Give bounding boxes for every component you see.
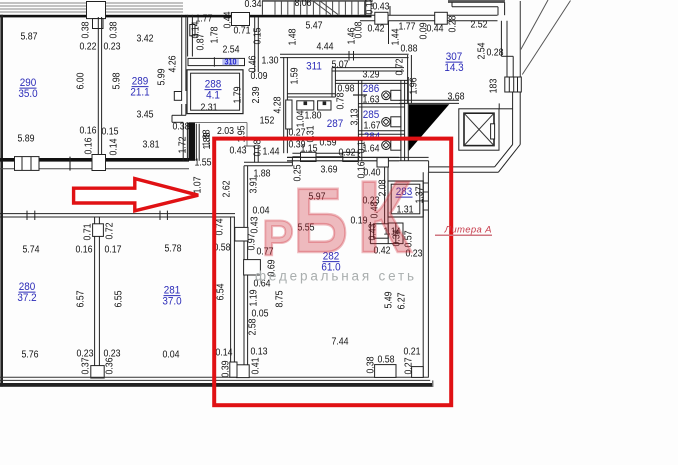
svg-text:Б: Б [293, 168, 348, 271]
svg-text:6.27: 6.27 [395, 292, 407, 309]
svg-text:0.28: 0.28 [446, 15, 458, 32]
svg-text:0.22: 0.22 [79, 40, 96, 52]
svg-text:2.58: 2.58 [246, 318, 258, 335]
svg-text:289: 289 [132, 76, 149, 88]
svg-text:1.80: 1.80 [304, 109, 321, 121]
svg-text:3.91: 3.91 [247, 176, 259, 193]
svg-text:0.09: 0.09 [417, 22, 429, 39]
svg-text:0.43: 0.43 [248, 216, 260, 233]
svg-text:1.07: 1.07 [191, 176, 203, 193]
svg-text:К: К [357, 161, 412, 275]
svg-text:6.55: 6.55 [112, 290, 124, 307]
svg-text:0.23: 0.23 [103, 40, 120, 52]
svg-text:1.79: 1.79 [231, 86, 243, 103]
svg-text:федеральная сеть: федеральная сеть [255, 269, 414, 284]
svg-text:0.41: 0.41 [249, 357, 261, 374]
svg-text:3.42: 3.42 [136, 32, 153, 44]
svg-text:1.44: 1.44 [262, 145, 279, 157]
svg-text:8.06: 8.06 [294, 0, 311, 8]
svg-text:290: 290 [20, 77, 37, 89]
svg-text:0.58: 0.58 [377, 353, 394, 365]
svg-text:0.38: 0.38 [79, 21, 91, 38]
svg-text:287: 287 [327, 118, 344, 130]
svg-text:2.62: 2.62 [220, 180, 232, 197]
svg-text:0.08: 0.08 [251, 139, 263, 156]
svg-text:5.07: 5.07 [331, 58, 348, 70]
svg-text:3.13: 3.13 [348, 108, 360, 125]
svg-text:0.39: 0.39 [219, 360, 231, 377]
svg-text:0.15: 0.15 [101, 125, 118, 137]
svg-text:0.72: 0.72 [103, 222, 115, 239]
svg-text:1.96: 1.96 [407, 77, 419, 94]
svg-text:Литера А: Литера А [444, 225, 492, 236]
svg-text:307: 307 [446, 51, 463, 63]
svg-text:0.97: 0.97 [245, 233, 257, 250]
svg-text:1.77: 1.77 [398, 20, 415, 32]
svg-text:0.28: 0.28 [486, 46, 503, 58]
svg-text:0.14: 0.14 [107, 138, 119, 155]
svg-text:21.1: 21.1 [130, 87, 149, 99]
svg-text:7.44: 7.44 [331, 335, 348, 347]
svg-text:1.67: 1.67 [363, 119, 380, 131]
svg-text:1.30: 1.30 [261, 54, 278, 66]
svg-text:311: 311 [306, 61, 322, 73]
svg-text:0.71: 0.71 [81, 223, 93, 240]
svg-text:0.23: 0.23 [103, 347, 120, 359]
svg-text:310: 310 [224, 57, 236, 67]
svg-text:0.04: 0.04 [162, 348, 179, 360]
svg-text:0.08: 0.08 [352, 21, 364, 38]
svg-text:3.29: 3.29 [362, 68, 379, 80]
svg-text:1.44: 1.44 [389, 28, 401, 45]
svg-text:0.27: 0.27 [402, 357, 414, 374]
svg-text:5.89: 5.89 [17, 132, 34, 144]
svg-text:0.46: 0.46 [246, 55, 258, 72]
svg-text:6.57: 6.57 [74, 290, 86, 307]
svg-text:0.38: 0.38 [364, 356, 376, 373]
svg-text:37.2: 37.2 [17, 292, 36, 304]
svg-text:0.16: 0.16 [82, 137, 94, 154]
svg-text:0.44: 0.44 [426, 22, 443, 34]
svg-text:0.88: 0.88 [400, 42, 417, 54]
svg-text:0.12: 0.12 [363, 0, 375, 15]
svg-text:4.44: 4.44 [316, 40, 333, 52]
svg-text:1.59: 1.59 [288, 67, 300, 84]
svg-text:1.72: 1.72 [176, 136, 188, 153]
svg-text:Р: Р [262, 211, 294, 266]
svg-text:0.92: 0.92 [338, 146, 355, 158]
svg-text:0.15: 0.15 [251, 27, 263, 44]
svg-text:0.42: 0.42 [367, 22, 384, 34]
svg-text:0.38: 0.38 [107, 21, 119, 38]
svg-text:1.48: 1.48 [286, 28, 298, 45]
svg-text:1.55: 1.55 [194, 156, 211, 168]
svg-text:2.39: 2.39 [249, 86, 261, 103]
svg-text:0.34: 0.34 [244, 0, 261, 9]
svg-text:5.76: 5.76 [21, 348, 38, 360]
svg-text:4.26: 4.26 [166, 55, 178, 72]
svg-text:2.54: 2.54 [475, 42, 487, 59]
svg-text:1.19: 1.19 [247, 289, 259, 306]
svg-text:0.14: 0.14 [215, 346, 232, 358]
svg-text:6.00: 6.00 [74, 72, 86, 89]
svg-text:0.71: 0.71 [233, 24, 250, 36]
svg-text:1.63: 1.63 [362, 93, 379, 105]
svg-text:152: 152 [260, 114, 275, 126]
svg-text:2.54: 2.54 [222, 43, 239, 55]
svg-text:5.87: 5.87 [20, 30, 37, 42]
svg-text:1.37: 1.37 [413, 186, 425, 203]
svg-text:0.13: 0.13 [250, 345, 267, 357]
svg-text:0.78: 0.78 [334, 92, 346, 109]
svg-text:281: 281 [164, 285, 181, 297]
svg-text:14.3: 14.3 [444, 62, 463, 74]
svg-text:0.38: 0.38 [172, 120, 189, 132]
svg-text:183: 183 [487, 79, 499, 94]
svg-text:0.37: 0.37 [79, 357, 91, 374]
svg-text:37.0: 37.0 [162, 296, 181, 308]
svg-text:2.52: 2.52 [470, 18, 487, 30]
svg-text:3.68: 3.68 [447, 90, 464, 102]
svg-text:0.98: 0.98 [337, 82, 354, 94]
svg-text:5.47: 5.47 [305, 19, 322, 31]
svg-text:3.45: 3.45 [136, 108, 153, 120]
svg-text:35.0: 35.0 [18, 88, 37, 100]
svg-text:1.04: 1.04 [294, 110, 306, 127]
svg-text:0.14: 0.14 [189, 21, 201, 38]
svg-text:5.99: 5.99 [155, 68, 167, 85]
svg-text:0.05: 0.05 [251, 307, 268, 319]
svg-text:280: 280 [19, 281, 36, 293]
svg-text:1.78: 1.78 [208, 26, 220, 43]
svg-text:2.31: 2.31 [200, 101, 217, 113]
svg-text:0.43: 0.43 [229, 144, 246, 156]
svg-text:1.15: 1.15 [300, 142, 317, 154]
svg-text:0.43: 0.43 [372, 0, 389, 11]
svg-text:5.74: 5.74 [22, 243, 39, 255]
svg-text:0.16: 0.16 [75, 243, 92, 255]
svg-text:5.98: 5.98 [110, 72, 122, 89]
svg-text:2.03: 2.03 [217, 124, 234, 136]
svg-text:5.49: 5.49 [382, 291, 394, 308]
svg-text:0.72: 0.72 [393, 58, 405, 75]
svg-text:5.78: 5.78 [164, 242, 181, 254]
svg-text:0.23: 0.23 [76, 347, 93, 359]
svg-text:8.75: 8.75 [273, 290, 285, 307]
svg-text:0.36: 0.36 [103, 357, 115, 374]
svg-text:0.44: 0.44 [221, 11, 233, 28]
svg-text:4.28: 4.28 [271, 96, 283, 113]
svg-text:3.81: 3.81 [142, 138, 159, 150]
svg-text:0.16: 0.16 [79, 124, 96, 136]
svg-text:288: 288 [205, 79, 222, 91]
svg-text:0.21: 0.21 [403, 345, 420, 357]
svg-text:0.17: 0.17 [104, 243, 121, 255]
svg-text:1.88: 1.88 [200, 129, 212, 146]
